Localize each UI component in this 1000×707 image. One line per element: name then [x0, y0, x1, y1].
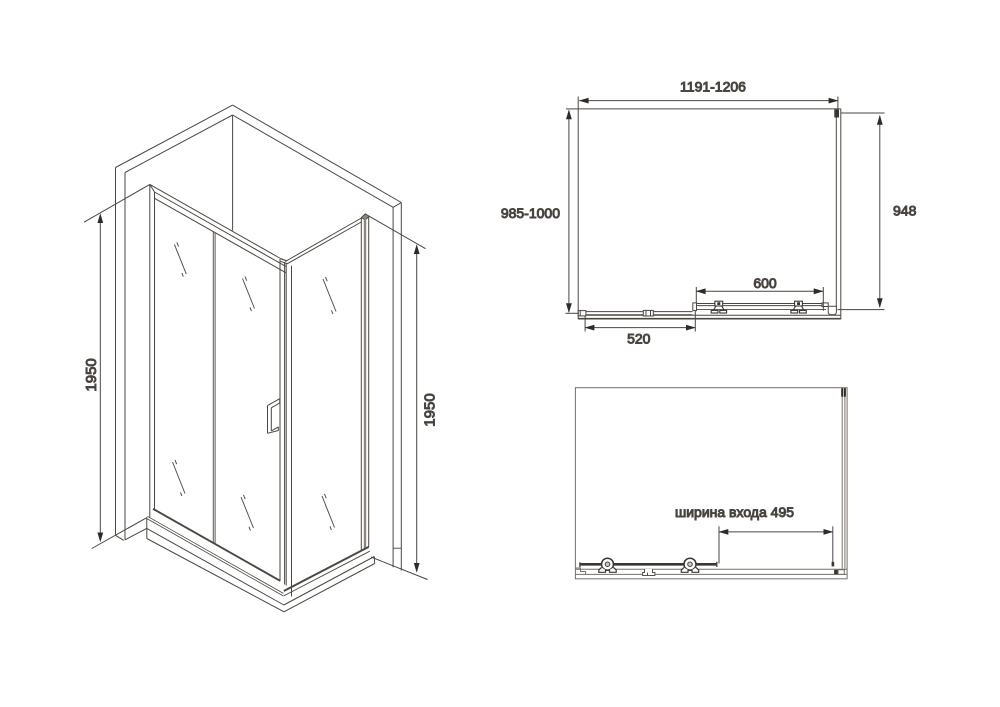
- svg-text:520: 520: [627, 331, 651, 347]
- svg-text:1191-1206: 1191-1206: [680, 79, 746, 95]
- svg-text:948: 948: [893, 203, 917, 219]
- svg-text:ширина входа 495: ширина входа 495: [675, 504, 794, 520]
- svg-text:985-1000: 985-1000: [501, 205, 560, 221]
- svg-text:1950: 1950: [83, 358, 100, 391]
- svg-text:600: 600: [753, 275, 777, 291]
- svg-text:1950: 1950: [422, 393, 439, 426]
